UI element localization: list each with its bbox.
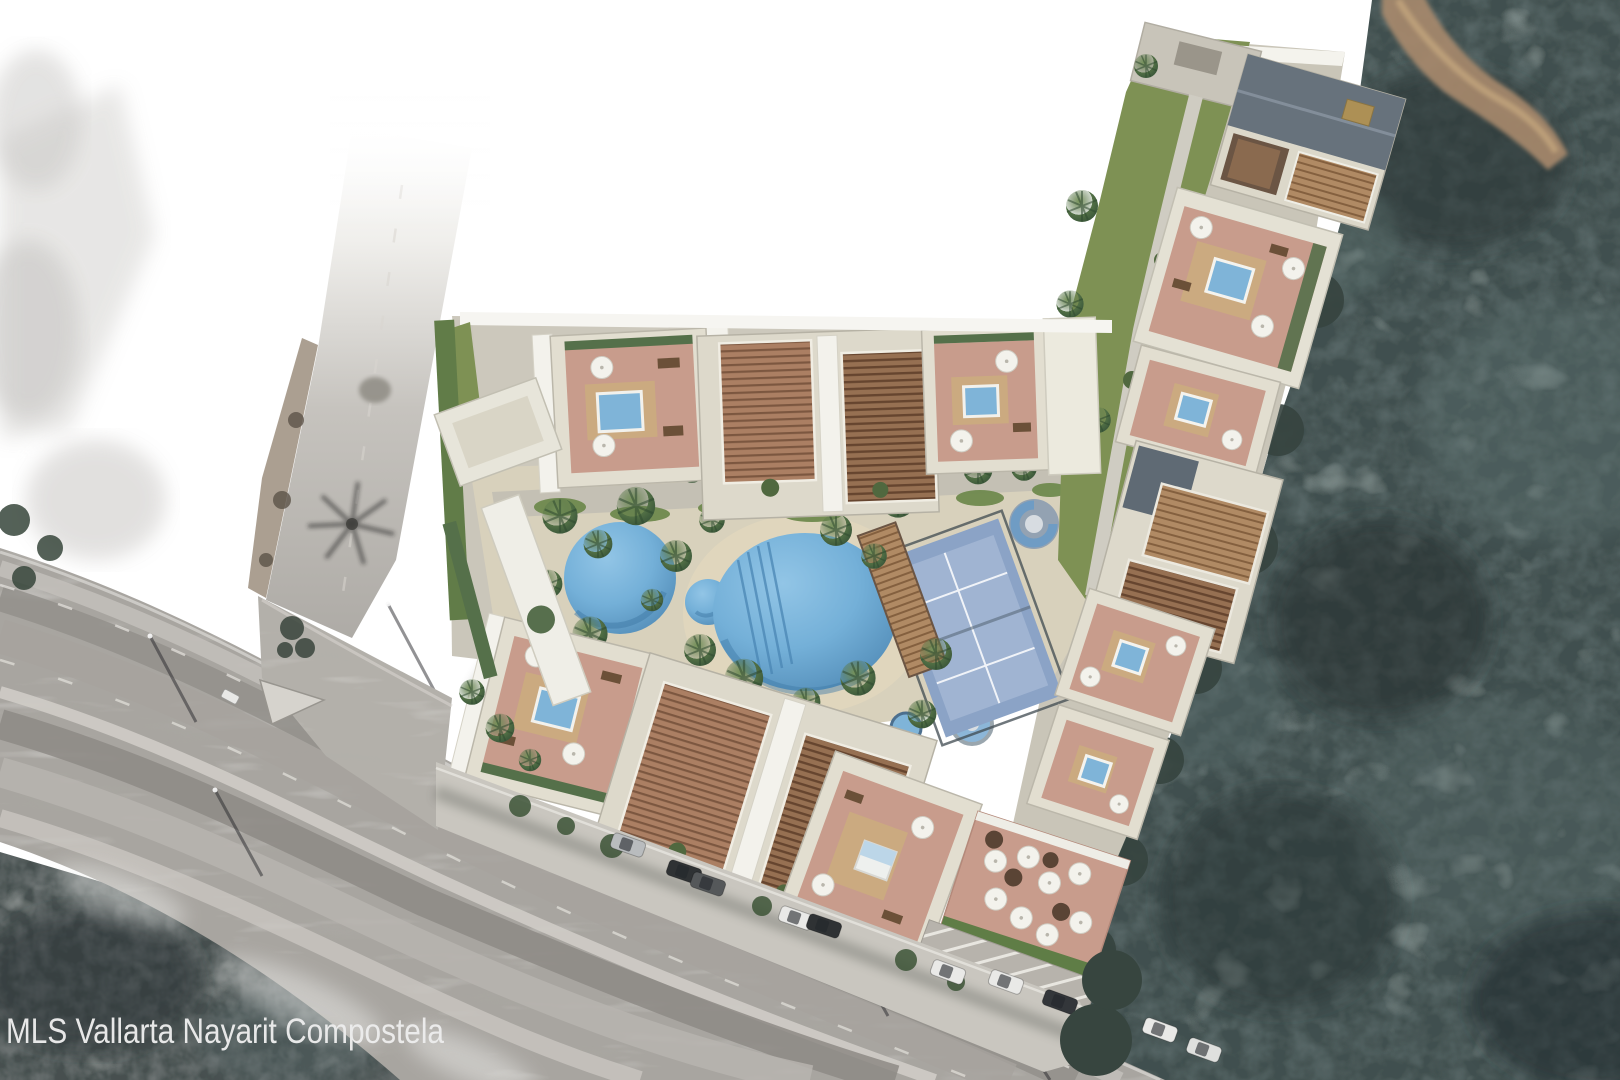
watermark-text: MLS Vallarta Nayarit Compostela xyxy=(6,1012,444,1051)
building-top-tower xyxy=(1043,317,1100,475)
plunge-pool xyxy=(597,391,643,431)
plunge-pool xyxy=(1176,393,1212,426)
building-top-pergola xyxy=(697,328,939,520)
aerial-site-plan: MLS Vallarta Nayarit Compostela xyxy=(0,0,1620,1080)
building-top-east xyxy=(922,326,1051,474)
plunge-pool xyxy=(964,386,999,417)
spiral-spa xyxy=(1009,499,1059,549)
screenshot-root: MLS Vallarta Nayarit Compostela xyxy=(0,0,1620,1080)
